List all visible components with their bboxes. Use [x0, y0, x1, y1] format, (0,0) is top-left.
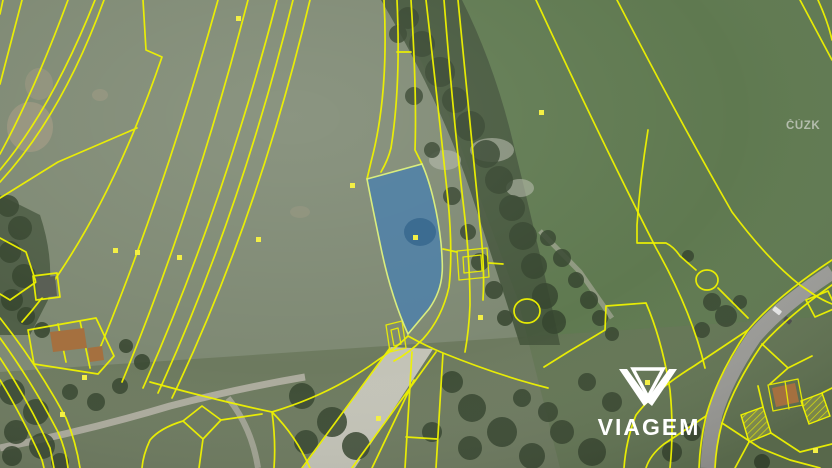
- tree-shadow-in-parcel: [404, 218, 436, 246]
- cadastral-map-image[interactable]: ČÚZK VIAGEM: [0, 0, 832, 468]
- cadastral-map-svg: ČÚZK VIAGEM: [0, 0, 832, 468]
- farm-building-roof: [50, 328, 87, 352]
- brand-logo-text: VIAGEM: [598, 414, 701, 440]
- cuzk-watermark: ČÚZK: [786, 119, 820, 132]
- farm-building-roof-dark: [36, 276, 57, 298]
- farm-building-roof: [88, 346, 104, 362]
